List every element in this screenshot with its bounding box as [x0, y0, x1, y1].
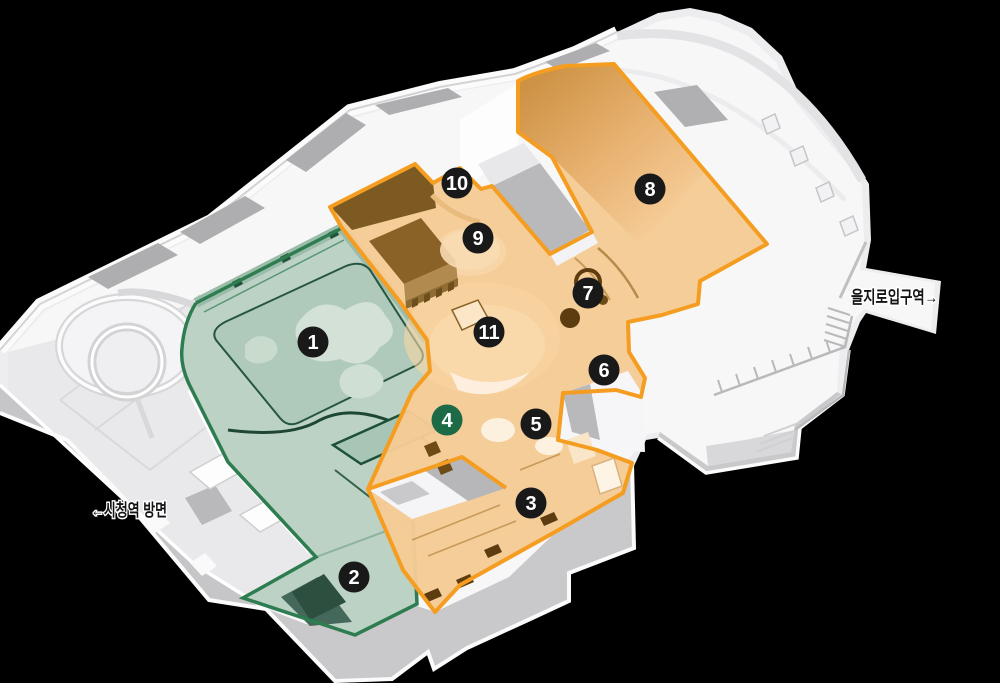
svg-text:11: 11 [478, 322, 499, 344]
svg-text:2: 2 [348, 567, 359, 589]
svg-text:10: 10 [446, 173, 468, 195]
svg-text:7: 7 [582, 283, 593, 305]
svg-text:1: 1 [307, 332, 318, 354]
svg-text:5: 5 [530, 414, 541, 436]
svg-text:6: 6 [598, 360, 609, 382]
svg-text:←시청역 방면: ←시청역 방면 [91, 500, 167, 520]
svg-text:3: 3 [525, 493, 536, 515]
svg-text:9: 9 [472, 228, 483, 250]
svg-text:4: 4 [441, 410, 453, 432]
svg-text:을지로입구역→: 을지로입구역→ [851, 288, 938, 307]
svg-text:8: 8 [644, 179, 655, 201]
